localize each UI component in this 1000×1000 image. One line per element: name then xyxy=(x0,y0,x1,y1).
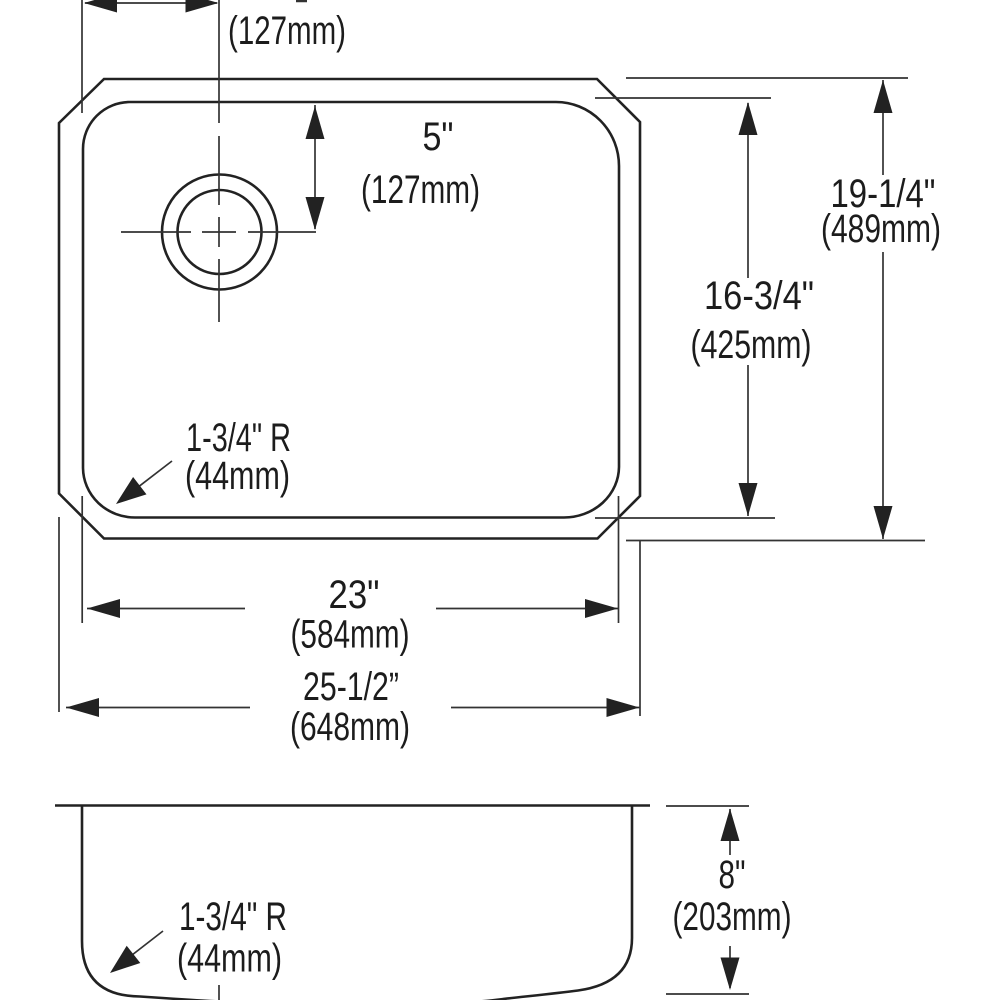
svg-text:(44mm): (44mm) xyxy=(177,937,282,981)
svg-text:(489mm): (489mm) xyxy=(821,207,941,251)
svg-text:8": 8" xyxy=(719,853,746,897)
svg-text:(127mm): (127mm) xyxy=(228,9,346,53)
svg-text:(44mm): (44mm) xyxy=(185,454,290,498)
svg-text:(203mm): (203mm) xyxy=(673,895,792,939)
svg-text:(127mm): (127mm) xyxy=(361,168,480,212)
svg-text:1-3/4" R: 1-3/4" R xyxy=(179,895,287,939)
svg-text:(425mm): (425mm) xyxy=(691,323,812,367)
svg-text:(648mm): (648mm) xyxy=(290,705,410,749)
svg-text:5": 5" xyxy=(423,115,454,159)
svg-text:25-1/2”: 25-1/2” xyxy=(303,665,399,709)
svg-text:23": 23" xyxy=(329,573,380,617)
svg-text:16-3/4": 16-3/4" xyxy=(704,274,814,318)
svg-text:(584mm): (584mm) xyxy=(291,613,410,657)
